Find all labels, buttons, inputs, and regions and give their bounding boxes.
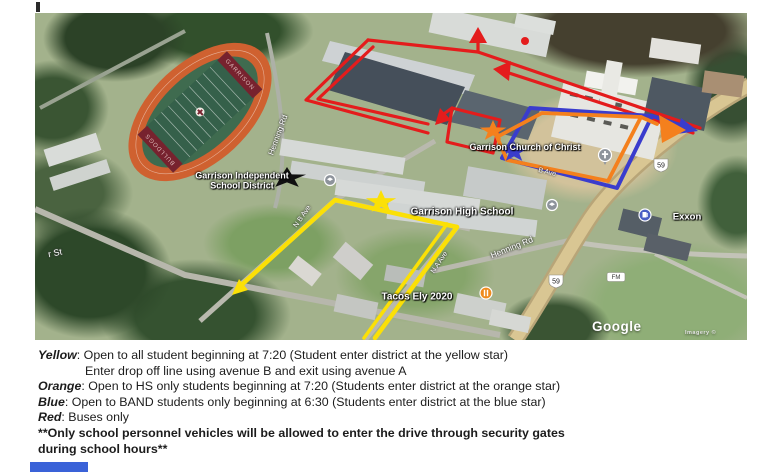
fm-road-shield: FM xyxy=(607,273,625,282)
artifact-mark xyxy=(36,2,40,12)
legend-line-orange: Orange: Open to HS only students beginni… xyxy=(38,379,738,395)
red-dot xyxy=(521,37,529,45)
high-school-pin-icon xyxy=(547,200,558,211)
restaurant-label: Tacos Ely 2020 xyxy=(382,291,453,303)
security-note-line2: during school hours** xyxy=(38,442,738,458)
legend-line-red: Red: Buses only xyxy=(38,410,738,426)
high-school-label: Garrison High School xyxy=(411,206,514,218)
svg-text:59: 59 xyxy=(552,279,560,286)
imagery-credit: Imagery © xyxy=(685,330,716,336)
google-watermark: Google xyxy=(592,319,642,334)
route-59-shield-upper: 59 xyxy=(654,159,668,172)
restaurant-pin-icon xyxy=(480,287,492,299)
route-legend: Yellow: Open to all student beginning at… xyxy=(38,348,738,457)
district-label: Garrison Independent School District xyxy=(195,171,289,192)
svg-text:FM: FM xyxy=(612,275,621,281)
svg-text:59: 59 xyxy=(657,163,665,170)
church-label: Garrison Church of Christ xyxy=(469,142,580,152)
legend-line-yellow: Yellow: Open to all student beginning at… xyxy=(38,348,738,364)
legend-line-blue: Blue: Open to BAND students only beginni… xyxy=(38,395,738,411)
satellite-map: GARRISON BULLDOGS xyxy=(35,13,747,340)
gas-station-label: Exxon xyxy=(673,213,702,224)
page: GARRISON BULLDOGS xyxy=(0,0,775,472)
school-district-pin-icon xyxy=(325,175,336,186)
security-note-line1: **Only school personnel vehicles will be… xyxy=(38,426,738,442)
legend-line-yellow-detail: Enter drop off line using avenue B and e… xyxy=(38,364,738,380)
gas-station-pin-icon xyxy=(639,209,651,221)
red-left-arrow xyxy=(493,61,511,81)
church-pin-icon xyxy=(599,149,612,166)
bottom-blue-strip xyxy=(30,462,88,472)
route-59-shield: 59 xyxy=(549,275,563,288)
